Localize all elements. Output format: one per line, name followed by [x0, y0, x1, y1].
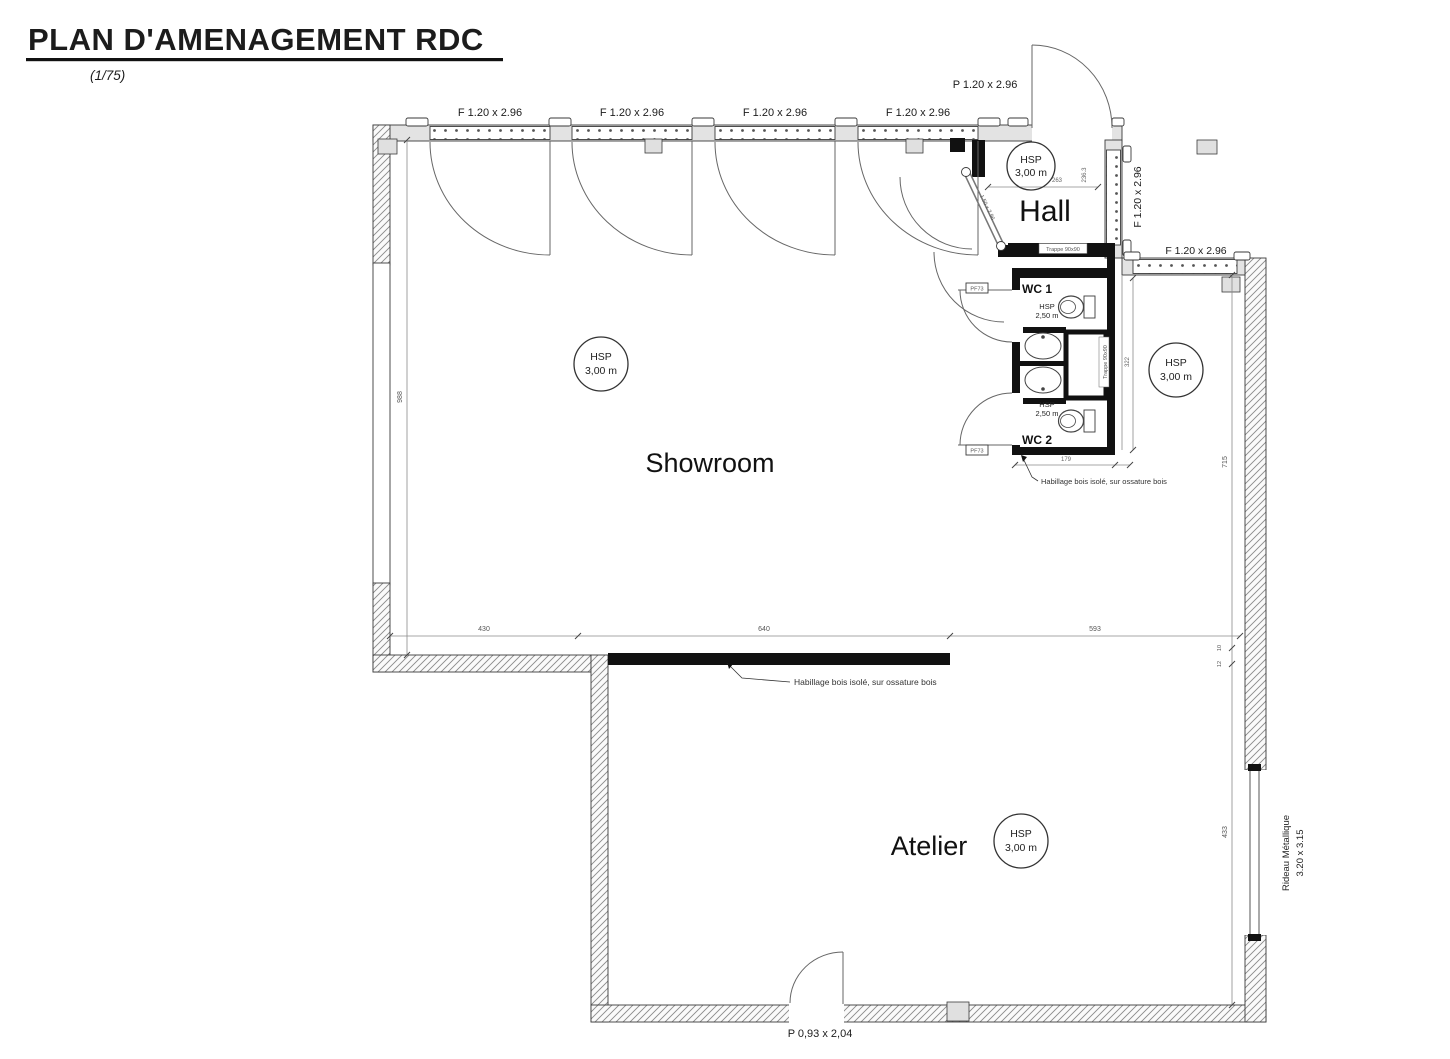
dim-988: 988 — [397, 391, 404, 403]
dim-step-b: 12 — [1217, 661, 1223, 667]
opening-labels: F 1.20 x 2.96 F 1.20 x 2.96 F 1.20 x 2.9… — [458, 79, 1306, 1040]
window-band-4 — [858, 127, 978, 140]
leader-annotations: Habillage bois isolé, sur ossature bois … — [727, 455, 1167, 687]
title-underline — [26, 58, 503, 61]
hsp-label: HSP — [1039, 302, 1054, 311]
column — [947, 1002, 969, 1021]
column — [378, 139, 397, 154]
wc2-door-gap — [1009, 393, 1023, 445]
room-label-wc2: WC 2 — [1022, 433, 1052, 447]
door-tag-pf73-1: PF73 — [970, 287, 983, 293]
column — [645, 139, 662, 153]
trappe-label-v: Trappe 90x90 — [1103, 345, 1109, 379]
column — [950, 138, 965, 152]
sink-icon-2 — [1025, 367, 1061, 393]
floor-plan-sheet: PLAN D'AMENAGEMENT RDC (1/75) — [0, 0, 1450, 1059]
door-tag-pf73-2: PF73 — [970, 449, 983, 455]
hsp-value: 2,50 m — [1036, 409, 1059, 418]
scale-note: (1/75) — [90, 68, 125, 83]
toilet-icon-wc1 — [1059, 296, 1096, 318]
rideau-label-line1: Rideau Métallique — [1281, 815, 1292, 891]
column — [1197, 140, 1217, 154]
wc1-door-arc — [960, 290, 1012, 342]
floor-plan-drawing: PLAN D'AMENAGEMENT RDC (1/75) — [0, 0, 1450, 1059]
column — [906, 139, 923, 153]
hsp-value: 3,00 m — [1015, 167, 1047, 179]
dim-322: 322 — [1125, 356, 1131, 367]
dim-593: 593 — [1089, 626, 1101, 633]
window-band-right — [1133, 260, 1237, 274]
rideau-opening — [1244, 764, 1267, 941]
window-label-1: F 1.20 x 2.96 — [458, 107, 522, 119]
window-label-right: F 1.20 x 2.96 — [1165, 245, 1226, 257]
left-wall-mid — [373, 263, 390, 585]
dim-715: 715 — [1222, 456, 1229, 468]
room-labels: Showroom Hall Atelier WC 1 WC 2 — [645, 195, 1070, 861]
room-label-atelier: Atelier — [891, 831, 968, 861]
entry-door-label: P 1.20 x 2.96 — [953, 79, 1018, 91]
atelier-door-arc — [790, 952, 843, 1003]
toilet-icon-wc2 — [1059, 410, 1096, 432]
hsp-value: 3,00 m — [1005, 842, 1037, 854]
hsp-label: HSP — [590, 351, 612, 363]
hsp-marker-showroom: HSP 3,00 m — [574, 337, 628, 391]
window-label-4: F 1.20 x 2.96 — [886, 107, 950, 119]
hinge-dot — [962, 168, 971, 177]
dim-430: 430 — [478, 626, 490, 633]
hall-door-arc-1 — [900, 177, 972, 249]
room-label-showroom: Showroom — [645, 448, 774, 478]
right-wall-upper — [1245, 258, 1266, 770]
dim-hall-a: 263 — [1052, 178, 1063, 184]
hsp-label: HSP — [1010, 828, 1032, 840]
sink-icon-1 — [1025, 333, 1061, 359]
title-block: PLAN D'AMENAGEMENT RDC (1/75) — [26, 22, 503, 83]
window-band-2 — [572, 127, 692, 140]
room-label-wc1: WC 1 — [1022, 282, 1052, 296]
window-arc-3 — [715, 142, 835, 255]
entry-door-gap — [1032, 124, 1112, 142]
hsp-label: HSP — [1039, 400, 1054, 409]
wc2-door-arc — [960, 393, 1012, 445]
window-band-hall — [1107, 150, 1121, 245]
column — [1222, 277, 1240, 292]
dim-433: 433 — [1222, 826, 1229, 838]
atelier-left-wall — [591, 655, 608, 1022]
hsp-value: 3,00 m — [1160, 371, 1192, 383]
window-arc-1 — [430, 142, 550, 255]
window-arc-4 — [858, 142, 978, 255]
atelier-door-gap — [789, 1004, 844, 1023]
window-label-3: F 1.20 x 2.96 — [743, 107, 807, 119]
dim-hall-b: 236.3 — [1082, 167, 1088, 183]
wc1-door-gap — [1009, 290, 1023, 342]
bottom-wall — [591, 1005, 1266, 1022]
dim-640: 640 — [758, 626, 770, 633]
window-arc-2 — [572, 142, 692, 255]
trappe-label-h: Trappe 90x90 — [1046, 247, 1080, 253]
rideau-label-line2: 3.20 x 3.15 — [1295, 829, 1306, 876]
habillage-note-wc: Habillage bois isolé, sur ossature bois — [1041, 477, 1167, 486]
hsp-value: 2,50 m — [1036, 311, 1059, 320]
hsp-marker-wc1: HSP 2,50 m — [1036, 302, 1059, 320]
habillage-note-main: Habillage bois isolé, sur ossature bois — [794, 677, 937, 687]
wc-door-tags: PF73 PF73 — [966, 283, 988, 455]
right-wall-lower — [1245, 935, 1266, 1022]
dim-step-a: 10 — [1217, 645, 1223, 651]
door-swings — [430, 45, 1112, 1004]
hinge-dot — [997, 242, 1006, 251]
showroom-bottom-wall — [373, 655, 591, 672]
page-title: PLAN D'AMENAGEMENT RDC — [28, 22, 484, 57]
window-label-hall: F 1.20 x 2.96 — [1132, 166, 1144, 227]
window-band-3 — [715, 127, 835, 140]
dim-179: 179 — [1061, 457, 1072, 463]
window-label-2: F 1.20 x 2.96 — [600, 107, 664, 119]
hsp-marker-atelier: HSP 3,00 m — [994, 814, 1048, 868]
hall-diagonal-partition: 1.50 x 2.96 — [962, 168, 1006, 251]
hsp-marker-hall: HSP 3,00 m — [1007, 142, 1055, 190]
hsp-label: HSP — [1165, 357, 1187, 369]
atelier-door-label: P 0,93 x 2,04 — [788, 1028, 853, 1040]
habillage-bois-wall — [608, 653, 950, 665]
hsp-value: 3,00 m — [585, 365, 617, 377]
hsp-marker-right-strip: HSP 3,00 m — [1149, 343, 1203, 397]
window-band-1 — [430, 127, 550, 140]
entry-door-arc — [1032, 45, 1112, 128]
room-label-hall: Hall — [1019, 195, 1071, 228]
hsp-label: HSP — [1020, 154, 1042, 166]
